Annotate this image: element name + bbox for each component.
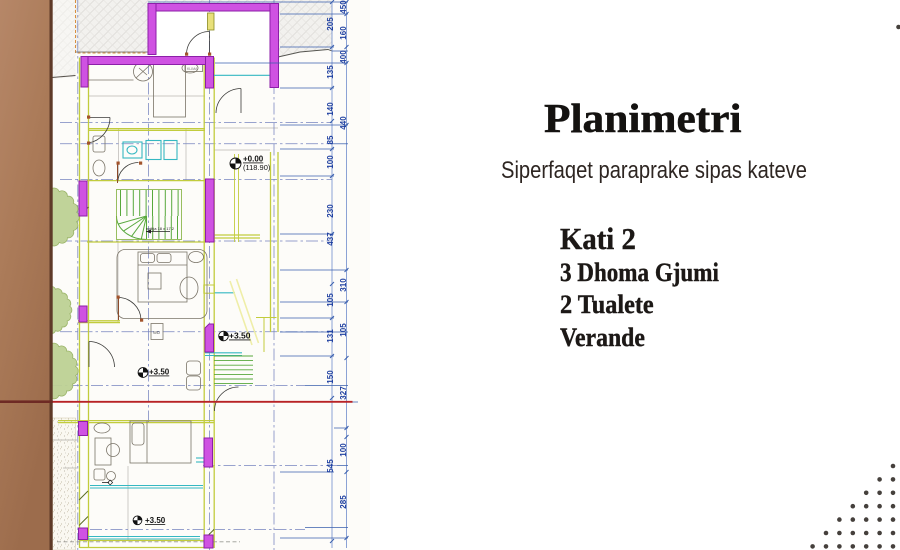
svg-text:230: 230 <box>326 204 335 218</box>
svg-text:WD: WD <box>153 330 160 335</box>
svg-text:545: 545 <box>326 459 335 473</box>
svg-text:285: 285 <box>339 495 348 509</box>
svg-text:140: 140 <box>326 102 335 116</box>
svg-text:450: 450 <box>339 0 348 14</box>
svg-text:+3.50: +3.50 <box>145 516 166 525</box>
svg-text:400: 400 <box>339 50 348 64</box>
svg-text:327: 327 <box>339 386 348 400</box>
svg-text:205: 205 <box>326 17 335 31</box>
svg-text:160: 160 <box>339 26 348 40</box>
svg-text:105: 105 <box>339 323 348 337</box>
svg-text:310: 310 <box>339 278 348 292</box>
svg-text:135: 135 <box>326 65 335 79</box>
svg-text:ngjitja 18 x 17.2: ngjitja 18 x 17.2 <box>146 226 175 231</box>
svg-text:440: 440 <box>339 116 348 130</box>
svg-text:131: 131 <box>326 329 335 343</box>
svg-text:85: 85 <box>326 135 335 144</box>
svg-text:+3.50: +3.50 <box>149 368 170 377</box>
svg-text:105: 105 <box>326 293 335 307</box>
svg-text:150: 150 <box>326 370 335 384</box>
svg-text:437: 437 <box>326 232 335 246</box>
svg-text:(118.90): (118.90) <box>243 163 271 172</box>
svg-text:+3.50: +3.50 <box>229 331 251 341</box>
svg-text:100: 100 <box>339 443 348 457</box>
svg-text:100: 100 <box>326 155 335 169</box>
